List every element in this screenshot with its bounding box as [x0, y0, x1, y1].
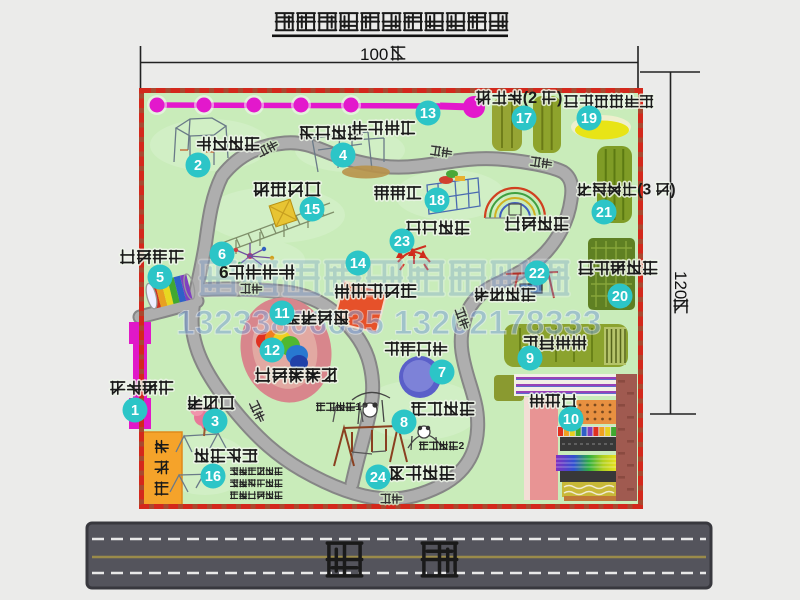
svg-text:23: 23: [394, 234, 410, 250]
svg-text:2: 2: [194, 158, 202, 174]
svg-text:12: 12: [264, 343, 280, 359]
svg-text:17: 17: [516, 111, 532, 127]
svg-text:13: 13: [420, 106, 436, 122]
svg-text:120: 120: [671, 271, 690, 299]
svg-text:): ): [670, 182, 675, 199]
svg-text:1: 1: [356, 402, 362, 413]
svg-text:16: 16: [205, 469, 221, 485]
svg-text:24: 24: [370, 470, 386, 486]
svg-text:22: 22: [529, 266, 545, 282]
svg-text:5: 5: [156, 270, 164, 286]
svg-text:14: 14: [350, 256, 366, 272]
svg-text:15: 15: [304, 202, 320, 218]
svg-text:8: 8: [400, 415, 408, 431]
svg-text:10: 10: [563, 412, 579, 428]
svg-text:7: 7: [438, 365, 446, 381]
svg-text:9: 9: [526, 351, 534, 367]
svg-text:(2: (2: [523, 89, 537, 107]
svg-text:19: 19: [581, 111, 597, 127]
svg-text:4: 4: [339, 148, 347, 164]
svg-text:(3: (3: [637, 182, 651, 199]
svg-text:1: 1: [131, 403, 139, 419]
svg-text:100: 100: [360, 45, 388, 64]
svg-text:3: 3: [211, 414, 219, 430]
svg-text:2: 2: [459, 441, 465, 452]
svg-text:21: 21: [596, 205, 612, 221]
svg-text:18: 18: [429, 193, 445, 209]
svg-text:11: 11: [274, 306, 289, 322]
svg-text:6: 6: [218, 247, 226, 263]
svg-text:20: 20: [612, 289, 628, 305]
svg-text:): ): [557, 89, 562, 107]
